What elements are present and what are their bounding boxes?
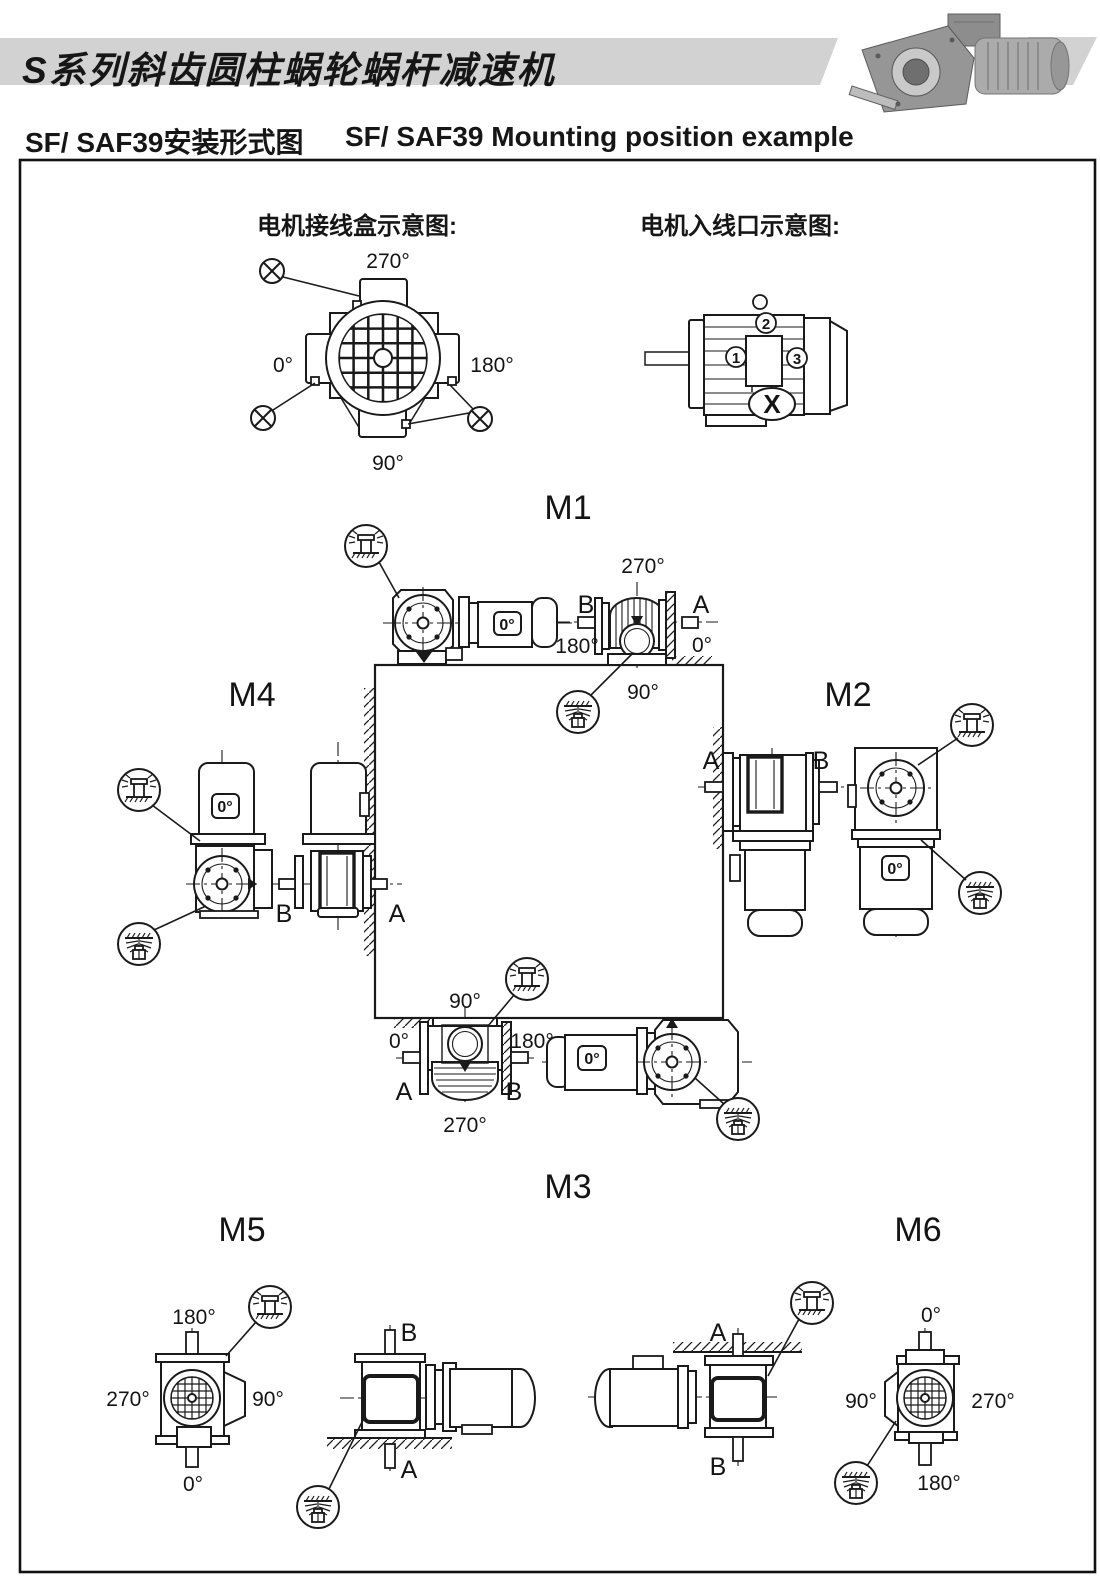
m5-assembly: M5 180° 270° 90° 0°: [106, 1211, 540, 1528]
m5-label-b: B: [401, 1319, 418, 1347]
m4-label-b: B: [276, 900, 293, 928]
m5-label-a: A: [401, 1456, 418, 1484]
m6-title: M6: [894, 1211, 941, 1249]
m4-title: M4: [228, 676, 275, 714]
ce-pos-3: 3: [793, 351, 801, 368]
m5-deg180: 180°: [172, 1306, 215, 1329]
m4-motor-angle: 0°: [217, 799, 232, 816]
m5-deg0: 0°: [183, 1473, 203, 1496]
m1-label-b: B: [578, 591, 595, 619]
legend-junction-box-title: 电机接线盒示意图:: [257, 206, 457, 241]
m1-motor-angle: 0°: [499, 617, 514, 634]
subtitle-english: SF/ SAF39 Mounting position example: [345, 121, 854, 153]
m6-deg270: 270°: [971, 1390, 1014, 1413]
m6-label-a: A: [710, 1319, 727, 1347]
m1-deg270: 270°: [621, 555, 664, 578]
m3-title: M3: [544, 1168, 591, 1206]
ce-pos-2: 2: [762, 316, 770, 333]
page-title: S系列斜齿圆柱蜗轮蜗杆减速机: [22, 40, 556, 94]
m5-deg270: 270°: [106, 1388, 149, 1411]
legend-cable-entry-drawing: 2 1 3 X: [645, 295, 847, 426]
m6-assembly: M6 A B 0° 90° 270°: [588, 1211, 1015, 1504]
ce-pos-1: 1: [732, 350, 740, 367]
m3-label-b: B: [506, 1078, 523, 1106]
subtitle-chinese: SF/ SAF39安装形式图: [25, 121, 303, 161]
m2-motor-angle: 0°: [887, 861, 902, 878]
m2-label-a: A: [703, 747, 720, 775]
jb-deg-top: 270°: [366, 250, 409, 273]
page-drawing: 270° 0° 180° 90° 2 1 3 X: [0, 0, 1100, 1583]
m2-assembly: M2 A B 0°: [698, 676, 1001, 940]
legend-junction-box-drawing: 270° 0° 180° 90°: [251, 250, 514, 475]
hatch-top: [672, 656, 712, 665]
ce-pos-x: X: [763, 389, 781, 419]
legend-cable-entry-title: 电机入线口示意图:: [640, 206, 840, 241]
m3-motor-angle: 0°: [584, 1051, 599, 1068]
m3-deg0: 0°: [389, 1030, 409, 1053]
product-photo: [849, 14, 1069, 112]
m4-label-a: A: [389, 900, 406, 928]
m1-deg90: 90°: [627, 681, 659, 704]
m2-label-b: B: [813, 747, 830, 775]
m6-deg0: 0°: [921, 1304, 941, 1327]
m1-deg180: 180°: [555, 635, 598, 658]
m1-deg0: 0°: [692, 634, 712, 657]
m2-title: M2: [824, 676, 871, 714]
jb-deg-right: 180°: [470, 354, 513, 377]
m5-title: M5: [218, 1211, 265, 1249]
m4-assembly: M4 0° B A: [118, 676, 406, 965]
m1-assembly: 0° M1 270° B A 180° 0° 90°: [345, 489, 718, 733]
m1-label-a: A: [693, 591, 710, 619]
m3-deg90: 90°: [449, 990, 481, 1013]
m6-deg90: 90°: [845, 1390, 877, 1413]
m1-title: M1: [544, 489, 591, 527]
jb-deg-left: 0°: [273, 354, 293, 377]
m3-label-a: A: [396, 1078, 413, 1106]
m6-deg180: 180°: [917, 1472, 960, 1495]
jb-deg-bottom: 90°: [372, 452, 404, 475]
m3-deg270: 270°: [443, 1114, 486, 1137]
m3-assembly: M3 90° 0° 180° A B 270° 0°: [389, 958, 759, 1206]
mounting-cube: [375, 665, 723, 1018]
m5-deg90: 90°: [252, 1388, 284, 1411]
m6-label-b: B: [710, 1453, 727, 1481]
